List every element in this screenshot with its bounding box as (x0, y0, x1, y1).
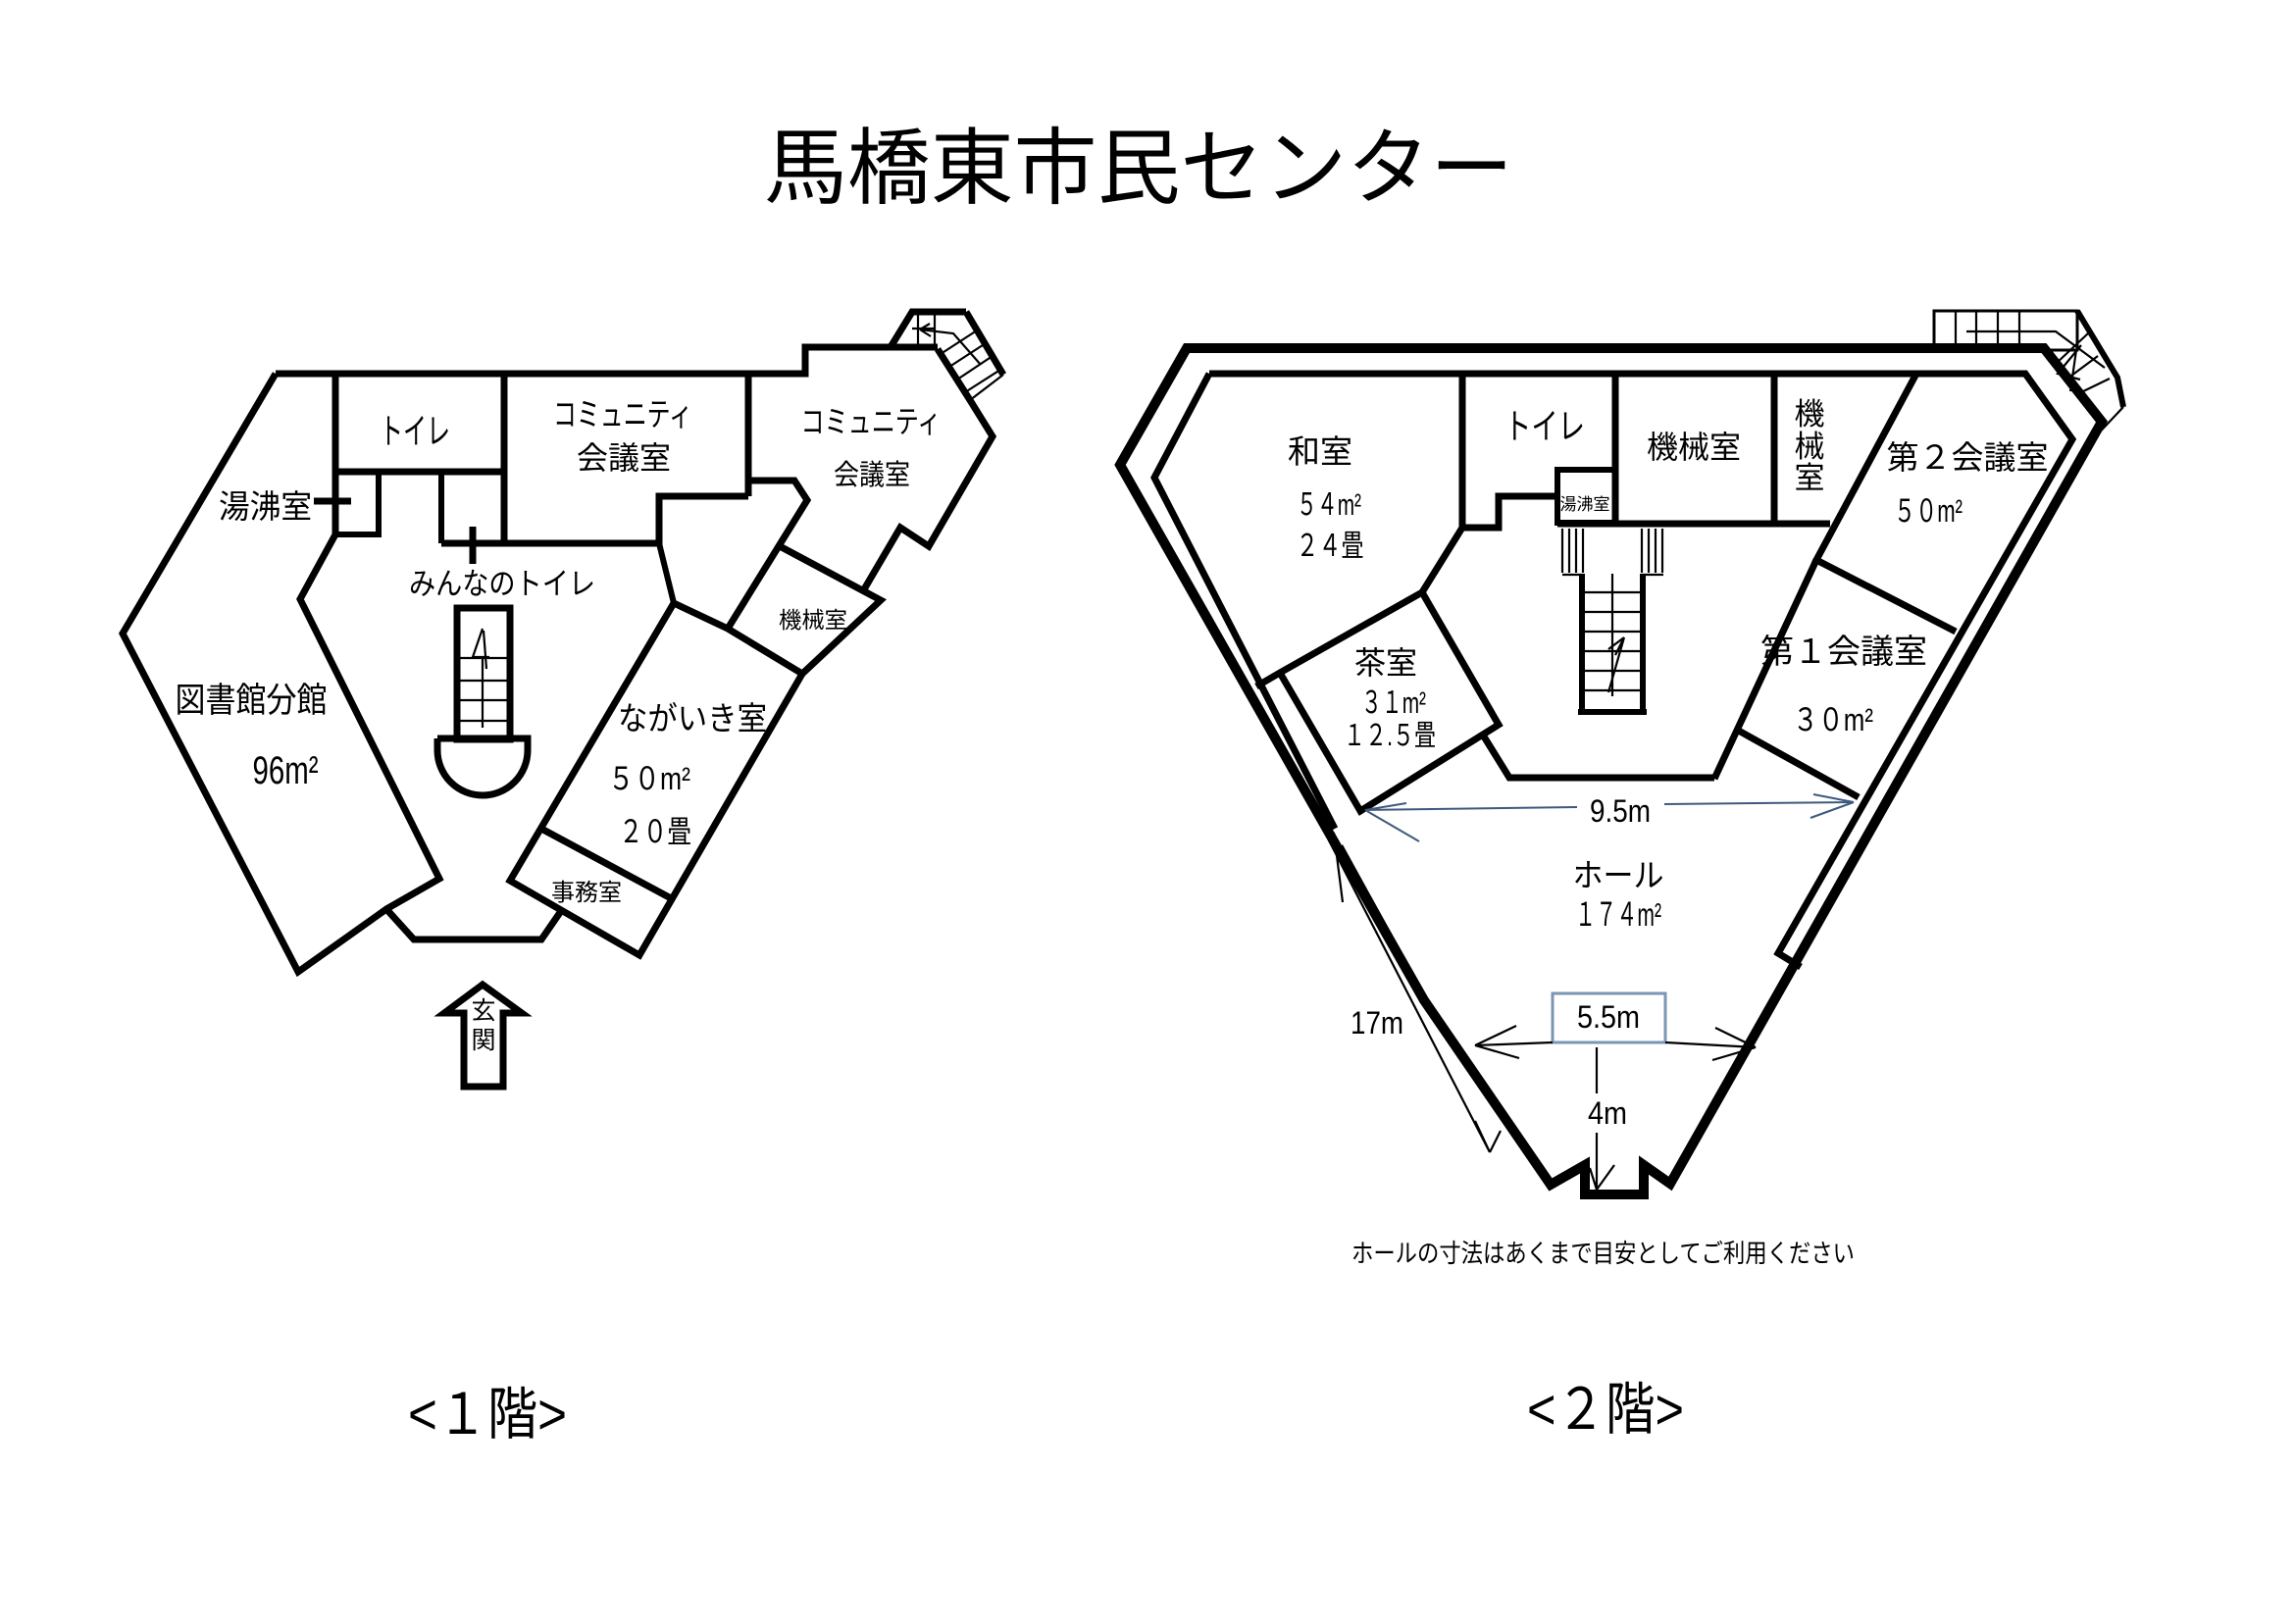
svg-text:第１会議室: 第１会議室 (1760, 634, 1927, 671)
svg-text:５０m²: ５０m² (608, 761, 690, 796)
svg-text:５０m²: ５０m² (1894, 493, 1963, 529)
svg-text:２４畳: ２４畳 (1297, 529, 1364, 563)
svg-text:１７４m²: １７４m² (1575, 896, 1661, 933)
svg-text:機械室: 機械室 (1647, 430, 1741, 465)
svg-text:第２会議室: 第２会議室 (1887, 439, 2049, 476)
svg-text:機: 機 (1795, 397, 1825, 431)
svg-text:玄: 玄 (471, 997, 495, 1025)
svg-text:事務室: 事務室 (551, 880, 622, 906)
svg-text:機械室: 機械室 (779, 607, 847, 633)
svg-text:17m: 17m (1351, 1005, 1403, 1040)
svg-text:みんなのトイレ: みんなのトイレ (409, 567, 595, 601)
svg-text:関: 関 (471, 1027, 495, 1054)
svg-text:<２階>: <２階> (1527, 1378, 1684, 1442)
svg-text:械: 械 (1795, 430, 1825, 464)
svg-text:室: 室 (1795, 461, 1825, 495)
svg-text:ホール: ホール (1573, 857, 1664, 893)
svg-text:会議室: 会議室 (577, 440, 671, 476)
svg-text:図書館分館: 図書館分館 (176, 682, 328, 720)
svg-text:和室: 和室 (1288, 433, 1352, 470)
svg-text:9.5m: 9.5m (1590, 793, 1651, 829)
svg-text:３０m²: ３０m² (1793, 702, 1873, 737)
svg-text:ながいき室: ながいき室 (618, 700, 767, 736)
svg-text:馬橋東市民センター: 馬橋東市民センター (764, 123, 1513, 216)
svg-text:湯沸室: 湯沸室 (1560, 495, 1610, 514)
svg-text:茶室: 茶室 (1354, 645, 1417, 681)
svg-text:96m²: 96m² (253, 749, 319, 792)
svg-text:5.5m: 5.5m (1577, 999, 1640, 1035)
svg-text:２０畳: ２０畳 (619, 814, 691, 849)
svg-text:１２.５畳: １２.５畳 (1344, 720, 1436, 752)
svg-text:<１階>: <１階> (408, 1383, 567, 1446)
svg-text:５４m²: ５４m² (1297, 487, 1361, 522)
svg-text:コミュニティ: コミュニティ (801, 404, 942, 439)
svg-text:コミュニティ: コミュニティ (553, 396, 692, 432)
svg-text:会議室: 会議室 (834, 459, 910, 491)
svg-text:ホールの寸法はあくまで目安としてご利用ください: ホールの寸法はあくまで目安としてご利用ください (1351, 1239, 1855, 1268)
svg-text:トイレ: トイレ (380, 411, 450, 451)
svg-text:３１m²: ３１m² (1361, 685, 1426, 720)
svg-text:4m: 4m (1588, 1095, 1627, 1131)
svg-text:湯沸室: 湯沸室 (219, 488, 312, 525)
svg-text:トイレ: トイレ (1504, 406, 1585, 446)
